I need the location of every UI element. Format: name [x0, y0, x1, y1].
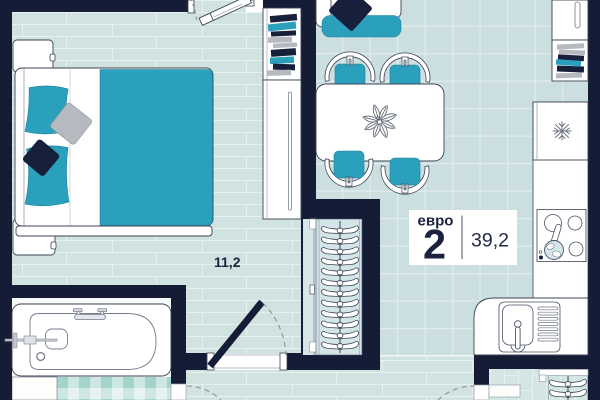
- svg-text:11,2: 11,2: [214, 254, 241, 270]
- svg-text:39,2: 39,2: [471, 230, 509, 252]
- svg-text:2: 2: [423, 221, 446, 268]
